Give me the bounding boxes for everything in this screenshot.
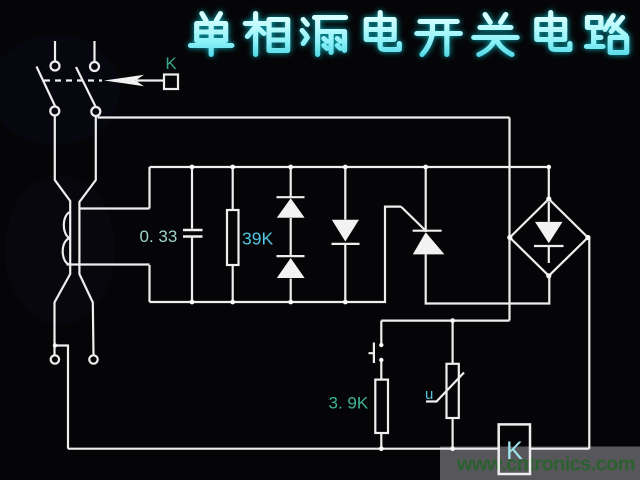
svg-text:3. 9K: 3. 9K	[329, 394, 369, 413]
svg-text:www.cntronics.com: www.cntronics.com	[456, 454, 635, 476]
svg-text:39K: 39K	[242, 229, 273, 249]
svg-text:0. 33: 0. 33	[140, 227, 178, 246]
svg-text:K: K	[165, 54, 177, 73]
svg-text:K: K	[506, 437, 523, 465]
svg-text:u: u	[425, 386, 433, 403]
